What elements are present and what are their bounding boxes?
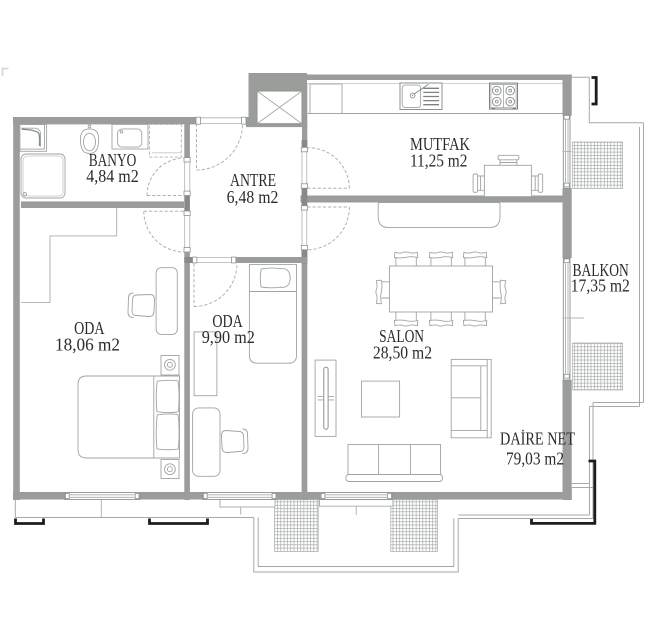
svg-text:28,50 m2: 28,50 m2 bbox=[373, 343, 432, 363]
svg-text:11,25 m2: 11,25 m2 bbox=[410, 151, 468, 171]
svg-text:17,35 m2: 17,35 m2 bbox=[571, 276, 630, 296]
svg-text:DAİRE NET: DAİRE NET bbox=[500, 429, 575, 449]
svg-text:9,90 m2: 9,90 m2 bbox=[202, 327, 255, 347]
svg-text:4,84 m2: 4,84 m2 bbox=[86, 166, 139, 186]
svg-text:6,48 m2: 6,48 m2 bbox=[227, 187, 279, 207]
svg-text:79,03 m2: 79,03 m2 bbox=[506, 449, 564, 469]
svg-text:18,06 m2: 18,06 m2 bbox=[55, 334, 120, 354]
